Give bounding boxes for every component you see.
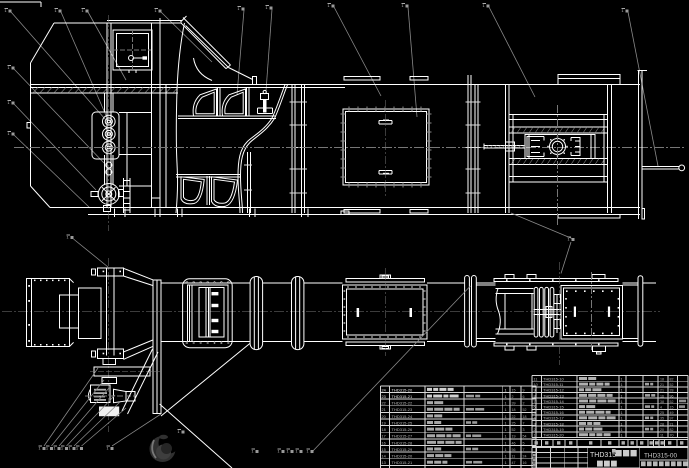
svg-text:THD315-13: THD315-13 (543, 393, 564, 398)
svg-text:3: 3 (534, 422, 536, 426)
svg-text:1: 1 (252, 450, 254, 454)
svg-text:1: 1 (621, 411, 623, 415)
svg-text:1: 1 (307, 450, 309, 454)
svg-text:1: 1 (505, 441, 507, 445)
svg-text:1: 1 (296, 450, 298, 454)
svg-text:25: 25 (660, 411, 664, 415)
svg-text:22: 22 (512, 415, 516, 419)
svg-text:1: 1 (505, 461, 507, 465)
svg-text:1: 1 (61, 447, 63, 451)
svg-text:THD315-28: THD315-28 (392, 440, 413, 445)
svg-text:24: 24 (523, 455, 527, 459)
svg-text:19: 19 (512, 435, 516, 439)
svg-text:1: 1 (622, 9, 624, 13)
svg-text:THD315-16: THD315-16 (543, 410, 564, 415)
svg-text:1: 1 (178, 430, 180, 434)
svg-text:15: 15 (382, 448, 386, 452)
svg-text:16: 16 (523, 461, 527, 465)
svg-text:20: 20 (660, 428, 664, 432)
svg-text:24: 24 (382, 388, 386, 392)
svg-text:2: 2 (523, 402, 525, 406)
svg-text:21: 21 (382, 408, 386, 412)
svg-text:20: 20 (382, 415, 386, 419)
svg-text:1: 1 (39, 447, 41, 451)
svg-text:9: 9 (523, 388, 525, 392)
svg-text:1: 1 (54, 447, 56, 451)
svg-text:13: 13 (382, 461, 386, 465)
svg-text:1: 1 (483, 4, 485, 8)
svg-text:52: 52 (523, 408, 527, 412)
svg-text:18: 18 (660, 377, 664, 381)
svg-text:15: 15 (512, 388, 516, 392)
svg-text:1: 1 (621, 389, 623, 393)
svg-text:1: 1 (534, 434, 536, 438)
svg-text:THD315-19: THD315-19 (543, 427, 564, 432)
svg-text:1: 1 (278, 450, 280, 454)
svg-text:52: 52 (670, 400, 674, 404)
svg-text:THD315-17: THD315-17 (543, 416, 564, 421)
svg-text:22: 22 (382, 402, 386, 406)
svg-text:4: 4 (534, 417, 536, 421)
svg-text:16: 16 (660, 394, 664, 398)
svg-text:7: 7 (523, 421, 525, 425)
svg-text:1: 1 (238, 7, 240, 11)
svg-text:1: 1 (69, 447, 71, 451)
svg-text:23: 23 (382, 395, 386, 399)
svg-text:35: 35 (660, 417, 664, 421)
svg-text:THD315-15: THD315-15 (543, 405, 564, 410)
svg-text:4: 4 (660, 406, 662, 410)
svg-text:1: 1 (55, 9, 57, 13)
svg-text:70: 70 (670, 434, 674, 438)
svg-text:47: 47 (512, 461, 516, 465)
svg-text:1: 1 (621, 417, 623, 421)
svg-text:2: 2 (534, 428, 536, 432)
svg-text:1: 1 (505, 415, 507, 419)
svg-text:THD315-00: THD315-00 (644, 453, 677, 460)
svg-text:1: 1 (8, 101, 10, 105)
svg-text:52: 52 (670, 383, 674, 387)
svg-text:1: 1 (8, 132, 10, 136)
svg-text:1: 1 (621, 406, 623, 410)
svg-text:15: 15 (670, 406, 674, 410)
svg-text:1: 1 (621, 377, 623, 381)
svg-text:82: 82 (670, 377, 674, 381)
svg-text:1: 1 (621, 383, 623, 387)
svg-text:THD315-21: THD315-21 (392, 460, 413, 465)
svg-text:21: 21 (660, 389, 664, 393)
svg-text:THD315: THD315 (590, 452, 616, 459)
svg-text:52: 52 (512, 428, 516, 432)
svg-text:25: 25 (512, 421, 516, 425)
svg-text:9: 9 (534, 389, 536, 393)
svg-text:7: 7 (534, 400, 536, 404)
svg-text:2: 2 (512, 395, 514, 399)
svg-text:1: 1 (621, 400, 623, 404)
svg-text:THD315-14: THD315-14 (543, 399, 564, 404)
svg-text:38: 38 (660, 400, 664, 404)
svg-text:THD315-27: THD315-27 (392, 434, 413, 439)
svg-text:28: 28 (660, 422, 664, 426)
svg-text:1: 1 (107, 447, 109, 451)
svg-text:10: 10 (534, 383, 538, 387)
svg-text:THD315-25: THD315-25 (392, 420, 413, 425)
svg-text:3: 3 (523, 428, 525, 432)
svg-text:5: 5 (534, 411, 536, 415)
svg-text:1: 1 (505, 408, 507, 412)
svg-text:56: 56 (512, 448, 516, 452)
svg-text:1: 1 (8, 66, 10, 70)
svg-text:8: 8 (534, 394, 536, 398)
svg-text:1: 1 (266, 6, 268, 10)
svg-text:THD315-20: THD315-20 (392, 387, 413, 392)
svg-text:THD315-12: THD315-12 (543, 388, 564, 393)
svg-text:THD315-21: THD315-21 (392, 394, 413, 399)
svg-text:1: 1 (505, 388, 507, 392)
svg-text:1: 1 (621, 428, 623, 432)
svg-text:1: 1 (505, 402, 507, 406)
svg-text:1: 1 (5, 9, 7, 13)
svg-text:1: 1 (76, 447, 78, 451)
svg-text:THD315-18: THD315-18 (543, 421, 564, 426)
svg-text:6: 6 (534, 406, 536, 410)
svg-text:49: 49 (670, 411, 674, 415)
svg-text:6: 6 (523, 395, 525, 399)
svg-text:19: 19 (382, 421, 386, 425)
svg-text:1: 1 (568, 238, 570, 242)
svg-text:18: 18 (512, 408, 516, 412)
svg-text:7: 7 (523, 448, 525, 452)
svg-text:54: 54 (523, 435, 527, 439)
svg-text:THD315-23: THD315-23 (392, 407, 413, 412)
svg-text:39: 39 (512, 402, 516, 406)
svg-text:1: 1 (402, 4, 404, 8)
svg-text:21: 21 (670, 422, 674, 426)
svg-text:1: 1 (328, 4, 330, 8)
svg-text:THD315-20: THD315-20 (543, 433, 564, 438)
svg-text:11: 11 (534, 377, 538, 381)
svg-text:THD315-26: THD315-26 (392, 427, 413, 432)
svg-text:1: 1 (505, 455, 507, 459)
svg-text:1: 1 (621, 394, 623, 398)
svg-text:1: 1 (621, 434, 623, 438)
svg-text:1: 1 (505, 428, 507, 432)
svg-text:1: 1 (155, 9, 157, 13)
svg-text:17: 17 (382, 435, 386, 439)
svg-text:1: 1 (46, 447, 48, 451)
svg-text:THD315-29: THD315-29 (392, 447, 413, 452)
svg-text:18: 18 (523, 415, 527, 419)
svg-text:1: 1 (505, 395, 507, 399)
svg-text:16: 16 (382, 441, 386, 445)
svg-text:82: 82 (670, 428, 674, 432)
svg-text:THD315-20: THD315-20 (392, 454, 413, 459)
svg-text:11: 11 (660, 434, 664, 438)
svg-text:11: 11 (512, 455, 516, 459)
svg-text:THD315-22: THD315-22 (392, 401, 413, 406)
svg-text:1: 1 (621, 422, 623, 426)
svg-text:1: 1 (505, 435, 507, 439)
svg-text:96: 96 (670, 394, 674, 398)
svg-text:1: 1 (287, 450, 289, 454)
svg-text:14: 14 (382, 455, 386, 459)
svg-text:1: 1 (82, 9, 84, 13)
svg-text:18: 18 (382, 428, 386, 432)
svg-text:THD315-11: THD315-11 (543, 382, 564, 387)
svg-text:1: 1 (505, 448, 507, 452)
svg-text:5: 5 (523, 441, 525, 445)
svg-text:97: 97 (670, 417, 674, 421)
svg-text:THD315-10: THD315-10 (543, 376, 564, 381)
svg-text:28: 28 (670, 389, 674, 393)
svg-text:1: 1 (67, 236, 69, 240)
svg-text:46: 46 (512, 441, 516, 445)
svg-text:THD315-24: THD315-24 (392, 414, 413, 419)
svg-text:1: 1 (505, 421, 507, 425)
svg-text:21: 21 (660, 383, 664, 387)
